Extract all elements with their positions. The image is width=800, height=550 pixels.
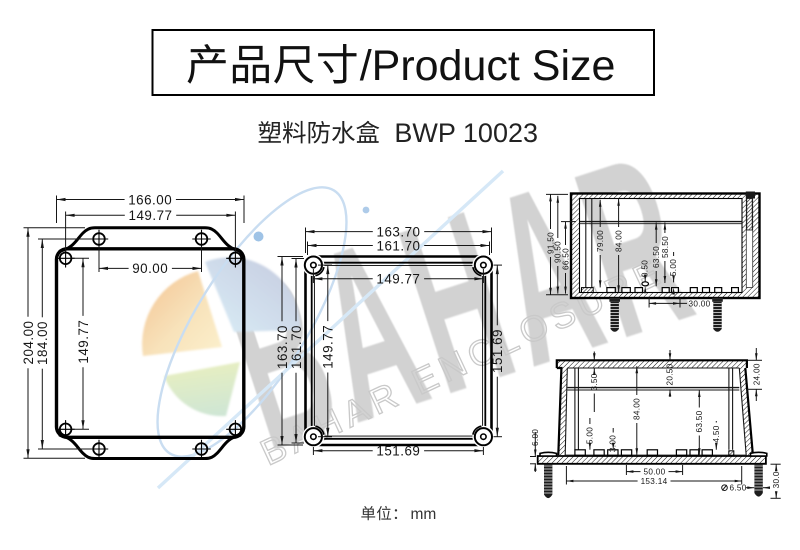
svg-text:3.00: 3.00 <box>609 435 618 452</box>
svg-text:63.50: 63.50 <box>695 410 704 432</box>
svg-text:79.00: 79.00 <box>596 230 605 252</box>
svg-text:84.00: 84.00 <box>615 230 624 252</box>
svg-text:90.00: 90.00 <box>132 261 168 276</box>
svg-text:BWP 10023: BWP 10023 <box>394 118 538 148</box>
svg-text:30.0: 30.0 <box>772 471 781 488</box>
svg-text:mm: mm <box>411 506 437 523</box>
svg-text:24.00: 24.00 <box>752 363 761 385</box>
svg-text:50.00: 50.00 <box>644 468 666 477</box>
svg-text:30.00: 30.00 <box>689 299 711 308</box>
svg-text:6.50: 6.50 <box>730 484 747 493</box>
svg-text:149.77: 149.77 <box>321 325 336 369</box>
svg-text:161.70: 161.70 <box>289 325 304 369</box>
svg-text:149.77: 149.77 <box>129 208 173 223</box>
svg-text:153.14: 153.14 <box>641 477 668 486</box>
svg-text:6.00: 6.00 <box>531 429 540 446</box>
svg-text:163.70: 163.70 <box>377 224 421 239</box>
svg-text:20.50: 20.50 <box>666 363 675 385</box>
svg-text:149.77: 149.77 <box>376 272 420 287</box>
svg-text:/Product Size: /Product Size <box>360 42 616 90</box>
svg-text:0.50: 0.50 <box>641 260 650 277</box>
svg-text:204.00: 204.00 <box>21 321 36 365</box>
svg-text:161.70: 161.70 <box>377 238 421 253</box>
svg-text:5.00: 5.00 <box>585 427 594 444</box>
svg-text:63.50: 63.50 <box>652 246 661 268</box>
svg-text:151.69: 151.69 <box>376 444 420 459</box>
svg-text:4.50: 4.50 <box>712 425 721 442</box>
svg-text:184.00: 184.00 <box>35 321 50 365</box>
svg-text:163.70: 163.70 <box>275 325 290 369</box>
svg-text:149.77: 149.77 <box>76 320 91 364</box>
svg-text:151.69: 151.69 <box>490 329 505 373</box>
svg-text:58.50: 58.50 <box>661 236 670 258</box>
svg-text:166.00: 166.00 <box>128 192 172 207</box>
svg-text:84.00: 84.00 <box>633 398 642 420</box>
svg-text:3.50: 3.50 <box>590 373 599 390</box>
svg-text:66.50: 66.50 <box>561 248 570 270</box>
svg-text:5.00: 5.00 <box>669 259 678 276</box>
